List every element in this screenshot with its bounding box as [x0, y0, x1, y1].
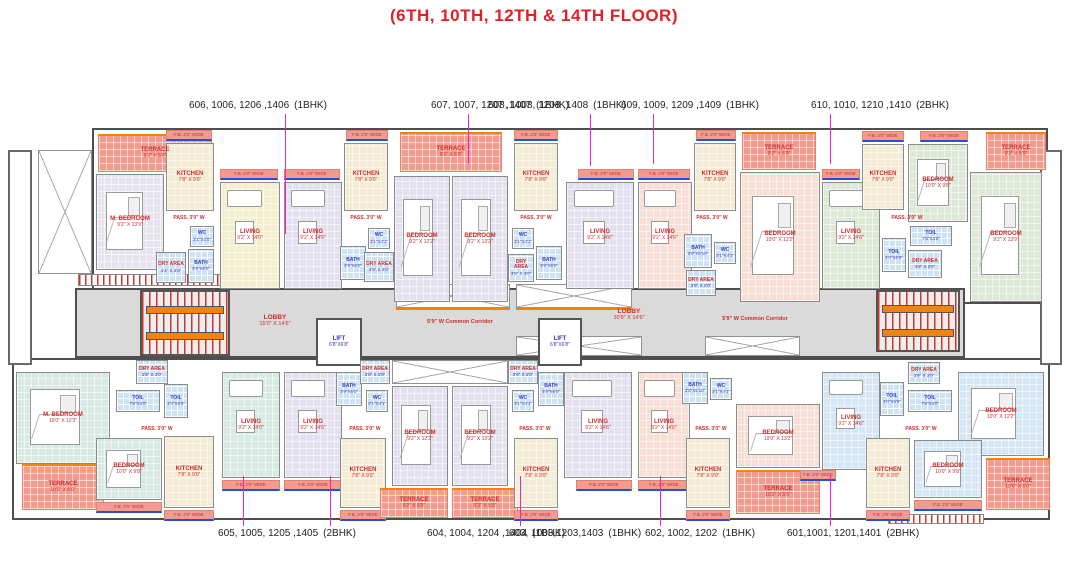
- room-dimension: 9'2" X 5'0": [436, 153, 465, 159]
- room-name: F.B. 2'0" WIDE: [693, 512, 722, 517]
- room-dimension: 7'8" X 9'0": [875, 474, 902, 480]
- room-bedroom: BEDROOM10'0" X 9'8": [96, 438, 162, 500]
- room-bedroom: BEDROOM9'2" X 12'2": [392, 386, 448, 486]
- room-f-b-2-0-wide: F.B. 2'0" WIDE: [920, 131, 968, 142]
- room-wc: WC3'1"X4'0": [190, 226, 214, 247]
- room-dimension: 10'0" X 12'3": [43, 419, 83, 425]
- room-dimension: 3'1"X4'1": [716, 253, 734, 258]
- room-dimension: 10'0" X 9'8": [932, 470, 963, 476]
- room-dimension: 9'2" X 5'9": [1001, 152, 1030, 158]
- room-dimension: 3'9" X 3'0": [366, 267, 392, 272]
- room-name: DRY AREA: [509, 260, 533, 272]
- room-bath: BATH3'9"X6'0": [336, 372, 362, 406]
- room-f-b-2-0-wide: F.B. 2'0" WIDE: [346, 130, 388, 141]
- room-pass-3-0-w: PASS. 3'0" W: [132, 424, 182, 435]
- room-f-b-2-0-wide: F.B. 2'0" WIDE: [914, 500, 982, 511]
- room-f-b-2-0-wide: F.B. 2'0" WIDE: [866, 510, 910, 521]
- room-dimension: 3'1"X4'1": [370, 239, 388, 244]
- room-bath: BATH3'9"X5'10": [682, 372, 708, 404]
- room-name: F.B. 2'0" WIDE: [929, 133, 958, 138]
- room-dimension: 7'8"X4'0": [129, 401, 147, 406]
- room-dimension: 9'2" X 14'6": [838, 422, 863, 428]
- duct-void-lower-right: [705, 336, 800, 356]
- room-name: F.B. 2'0" WIDE: [348, 512, 377, 517]
- void-hatch-bottom-center: [392, 360, 508, 384]
- room-living: LIVING9'2" X 14'6": [566, 182, 634, 289]
- room-dimension: 3'9" X 3'0": [362, 372, 388, 377]
- lobby-left-label: LOBBY 15'0" X 14'6": [240, 314, 310, 327]
- room-name: F.B. 2'0" WIDE: [234, 171, 263, 176]
- room-f-b-2-0-wide: F.B. 2'0" WIDE: [514, 130, 558, 141]
- room-dimension: 9'2" X 5'0": [399, 504, 428, 510]
- room-name: PASS. 3'0" W: [905, 427, 936, 433]
- room-dimension: 3'1"X4'0": [193, 237, 211, 242]
- room-bedroom: BEDROOM10'0" X 9'8": [908, 144, 968, 222]
- room-wc: WC3'1"X4'1": [366, 390, 388, 412]
- room-pass-3-0-w: PASS. 3'0" W: [688, 213, 736, 224]
- room-terrace: TERRACE9'2" X 5'9": [986, 132, 1046, 170]
- room-dimension: 10'0" X 5'0": [763, 493, 792, 499]
- room-dimension: 3'1"X4'1": [514, 239, 532, 244]
- room-dimension: 9'2" X 13'9": [110, 223, 150, 229]
- room-dimension: 7'8" X 9'0": [176, 473, 203, 479]
- room-dimension: 9'2" X 13'2": [464, 240, 495, 246]
- room-dimension: 10'0" X 9'8": [922, 184, 953, 190]
- room-bedroom: BEDROOM10'0" X 12'2": [740, 172, 820, 302]
- room-f-b-2-0-wide: F.B. 2'0" WIDE: [222, 480, 280, 491]
- room-dimension: 3'9" X 3'0": [911, 373, 937, 378]
- room-name: F.B. 2'0" WIDE: [174, 512, 203, 517]
- room-bedroom: BEDROOM9'2" X 13'9": [970, 172, 1042, 302]
- room-name: F.B. 2'0" WIDE: [297, 171, 326, 176]
- room-bedroom: BEDROOM9'2" X 13'2": [452, 176, 508, 302]
- room-name: PASS. 3'0" W: [173, 216, 204, 222]
- room-living: LIVING9'2" X 14'6": [284, 372, 342, 478]
- corridor-label-right: 5'9" W Common Corridor: [695, 316, 815, 322]
- room-name: F.B. 2'0" WIDE: [591, 171, 620, 176]
- room-name: F.B. 2'0" WIDE: [114, 504, 143, 509]
- room-dimension: 9'2" X 13'9": [990, 238, 1021, 244]
- room-living: LIVING9'2" X 14'6": [284, 182, 342, 289]
- lift-2: LIFT 6'8"X6'8": [538, 318, 582, 366]
- room-f-b-2-0-wide: F.B. 2'0" WIDE: [578, 169, 634, 180]
- room-dimension: 4'0"X6'9": [167, 401, 185, 406]
- unit-label: 606, 1006, 1206 ,1406 (1BHK): [138, 100, 378, 111]
- room-pass-3-0-w: PASS. 3'0" W: [688, 424, 734, 435]
- room-name: F.B. 2'0" WIDE: [521, 512, 550, 517]
- room-dry-area: DRY AREA4'4" X 3'0": [156, 252, 186, 283]
- room-dimension: 3'9"X5'10": [685, 388, 705, 393]
- sofa-icon: [829, 380, 863, 395]
- room-wc: WC3'1"X4'1": [512, 390, 534, 412]
- room-name: PASS. 3'0" W: [891, 216, 922, 222]
- unit-leader-line: [653, 114, 654, 164]
- room-dimension: 3'9"X6'0": [542, 389, 560, 394]
- room-dimension: 4'4" X 3'0": [158, 268, 184, 273]
- room-f-b-2-0-wide: F.B. 2'0" WIDE: [284, 169, 340, 180]
- staircase-left: [140, 290, 230, 356]
- room-dimension: 9'2" X 14'6": [300, 426, 325, 432]
- room-f-b-2-0-wide: F.B. 2'0" WIDE: [164, 510, 214, 521]
- lobby-right-label: LOBBY 10'9" X 14'6": [594, 308, 664, 321]
- room-terrace: TERRACE9'2" X 5'9": [742, 132, 816, 170]
- room-bedroom: BEDROOM10'0" X 9'8": [914, 440, 982, 498]
- room-dimension: 7'8" X 9'0": [523, 474, 550, 480]
- room-pass-3-0-w: PASS. 3'0" W: [512, 213, 560, 224]
- room-name: F.B. 2'0" WIDE: [701, 132, 730, 137]
- room-living: LIVING9'2" X 14'0": [222, 372, 280, 478]
- room-dry-area: DRY AREA3'9" X 3'0": [136, 360, 168, 384]
- room-dimension: 10'0" X 12'2": [985, 415, 1016, 421]
- room-f-b-2-0-wide: F.B. 2'0" WIDE: [686, 510, 730, 521]
- room-kitchen: KITCHEN7'8" X 9'0": [686, 438, 730, 508]
- sofa-icon: [572, 380, 612, 397]
- room-wc: WC3'1"X4'1": [710, 378, 732, 400]
- room-name: F.B. 2'0" WIDE: [352, 132, 381, 137]
- unit-leader-line: [468, 114, 469, 164]
- room-m-bedroom: M. BEDROOM9'2" X 13'9": [96, 174, 164, 270]
- room-dimension: 3'9"X6'0": [540, 263, 558, 268]
- room-living: LIVING9'2" X 14'6": [564, 372, 632, 478]
- room-dimension: 7'8" X 9'0": [695, 474, 722, 480]
- room-bath: BATH3'9"X6'0": [340, 246, 366, 280]
- room-dimension: 7'8" X 9'0": [177, 178, 204, 184]
- room-name: F.B. 2'0" WIDE: [236, 482, 265, 487]
- room-name: F.B. 2'0" WIDE: [298, 482, 327, 487]
- room-dimension: 7'8" X 9'0": [702, 178, 729, 184]
- unit-leader-line: [830, 476, 831, 526]
- room-dry-area: DRY AREA3'9" X 3'0": [908, 362, 940, 384]
- room-toil: TOIL4'0"X6'9": [882, 238, 906, 272]
- room-bedroom: BEDROOM9'2" X 12'2": [394, 176, 450, 302]
- room-kitchen: KITCHEN7'8" X 9'0": [344, 143, 388, 211]
- room-kitchen: KITCHEN7'8" X 9'0": [862, 144, 904, 210]
- room-wc: WC3'1"X4'1": [512, 228, 534, 249]
- room-dimension: 9'2" X 14'6": [585, 426, 610, 432]
- corridor-label-left: 5'9" W Common Corridor: [400, 319, 520, 325]
- room-dimension: 9'2" X 14'0": [238, 426, 263, 432]
- room-bedroom: BEDROOM9'2" X 13'2": [452, 386, 508, 486]
- column-left: [8, 150, 32, 365]
- room-dimension: 9'2" X 14'6": [300, 236, 325, 242]
- room-pass-3-0-w: PASS. 3'0" W: [884, 213, 930, 224]
- room-dry-area: DRY AREA3'9" X 3'0": [508, 254, 534, 282]
- room-kitchen: KITCHEN7'8" X 9'0": [164, 436, 214, 508]
- room-toil: TOIL7'8"X4'0": [116, 390, 160, 412]
- room-dimension: 7'8" X 9'0": [870, 178, 897, 184]
- room-dimension: 9'2" X 5'0": [470, 504, 499, 510]
- room-name: DRY AREA: [158, 262, 184, 268]
- room-dimension: 9'2" X 12'2": [406, 240, 437, 246]
- room-dimension: 10'0" X 5'0": [48, 488, 77, 494]
- room-f-b-2-0-wide: F.B. 2'0" WIDE: [284, 480, 342, 491]
- room-f-b-2-0-wide: F.B. 2'0" WIDE: [638, 480, 690, 491]
- room-name: F.B. 2'0" WIDE: [589, 482, 618, 487]
- room-dimension: 3'9"X6'0": [192, 266, 210, 271]
- room-dimension: 7'8"X4'0": [922, 236, 940, 241]
- room-dry-area: DRY AREA3'9" X 3'9": [908, 250, 942, 278]
- room-terrace: TERRACE9'2" X 5'0": [380, 488, 448, 518]
- room-name: F.B. 2'0" WIDE: [649, 171, 678, 176]
- room-dimension: 9'2" X 14'6": [651, 426, 676, 432]
- sofa-icon: [644, 380, 675, 397]
- room-kitchen: KITCHEN7'8" X 9'0": [866, 438, 910, 508]
- staircase-right: [876, 290, 960, 352]
- room-f-b-2-0-wide: F.B. 2'0" WIDE: [822, 169, 860, 180]
- room-name: PASS. 3'0" W: [695, 427, 726, 433]
- room-dry-area: DRY AREA3'9" X 3'0": [364, 252, 394, 282]
- room-dry-area: DRY AREA3'9" X 3'0": [686, 270, 716, 296]
- room-dimension: 3'9"X6'0": [340, 389, 358, 394]
- unit-label: 610, 1010, 1210 ,1410 (2BHK): [760, 100, 1000, 111]
- room-dimension: 7'8" X 9'0": [350, 474, 377, 480]
- room-dimension: 9'2" X 14'6": [838, 236, 863, 242]
- sofa-icon: [829, 190, 863, 207]
- lift-2-dim: 6'8"X6'8": [550, 342, 570, 348]
- room-terrace: TERRACE10'0" X 5'0": [22, 464, 104, 510]
- room-bath: BATH3'9"X5'10": [684, 234, 712, 268]
- room-dimension: 3'9" X 3'0": [688, 283, 714, 288]
- room-dry-area: DRY AREA3'9" X 3'0": [360, 360, 390, 384]
- room-f-b-2-0-wide: F.B. 2'0" WIDE: [576, 480, 632, 491]
- sofa-icon: [574, 190, 614, 207]
- sofa-icon: [291, 380, 325, 397]
- room-name: PASS. 3'0" W: [520, 216, 551, 222]
- room-dimension: 9'2" X 5'0": [140, 154, 169, 160]
- room-name: PASS. 3'0" W: [141, 427, 172, 433]
- room-f-b-2-0-wide: F.B. 2'0" WIDE: [96, 502, 162, 513]
- room-kitchen: KITCHEN7'8" X 9'0": [694, 143, 736, 211]
- void-hatch-top-left: [38, 150, 92, 274]
- lift-1-dim: 6'8"X6'8": [329, 342, 349, 348]
- room-name: F.B. 2'0" WIDE: [521, 132, 550, 137]
- room-toil: TOIL7'8"X4'0": [908, 390, 952, 412]
- unit-leader-line: [330, 476, 331, 526]
- room-bedroom: BEDROOM10'0" X 13'2": [736, 404, 820, 468]
- room-dimension: 3'9"X5'10": [688, 251, 708, 256]
- room-kitchen: KITCHEN7'8" X 9'0": [166, 143, 214, 211]
- room-dimension: 3'1"X4'1": [368, 401, 386, 406]
- room-terrace: TERRACE9'2" X 5'0": [452, 488, 518, 518]
- room-dimension: 9'2" X 12'2": [404, 437, 435, 443]
- room-dimension: 9'2" X 14'6": [587, 236, 612, 242]
- room-dimension: 9'2" X 5'9": [764, 152, 793, 158]
- room-bath: BATH3'9"X6'0": [188, 249, 214, 283]
- column-right: [1040, 150, 1062, 365]
- room-pass-3-0-w: PASS. 3'0" W: [342, 213, 390, 224]
- room-name: F.B. 2'0" WIDE: [803, 472, 832, 477]
- unit-leader-line: [285, 114, 286, 234]
- room-dimension: 10'0" X 9'8": [113, 470, 144, 476]
- room-wc: WC3'1"X4'1": [714, 242, 736, 264]
- room-name: F.B. 2'0" WIDE: [174, 132, 203, 137]
- room-dimension: 3'9" X 3'0": [510, 372, 536, 377]
- room-dimension: 3'9" X 3'9": [912, 264, 938, 269]
- room-dimension: 7'8" X 9'0": [523, 178, 550, 184]
- room-dimension: 7'8" X 9'0": [353, 178, 380, 184]
- room-name: F.B. 2'0" WIDE: [873, 512, 902, 517]
- sofa-icon: [227, 190, 263, 207]
- room-terrace: TERRACE10'0" X 5'0": [986, 458, 1050, 510]
- room-name: PASS. 3'0" W: [519, 427, 550, 433]
- room-dimension: 4'0"X6'9": [883, 399, 901, 404]
- room-kitchen: KITCHEN7'8" X 9'0": [514, 143, 558, 211]
- room-pass-3-0-w: PASS. 3'0" W: [342, 424, 388, 435]
- floor-plan-canvas: (6TH, 10TH, 12TH & 14TH FLOOR) LIFT 6'8"…: [0, 0, 1068, 572]
- room-wc: WC3'1"X4'1": [368, 228, 390, 249]
- room-dimension: 3'1"X4'1": [514, 401, 532, 406]
- room-living: LIVING9'2" X 14'0": [220, 182, 280, 289]
- room-pass-3-0-w: PASS. 3'0" W: [898, 424, 944, 435]
- sofa-icon: [291, 190, 325, 207]
- room-dimension: 3'1"X4'1": [712, 389, 730, 394]
- room-name: F.B. 2'0" WIDE: [649, 482, 678, 487]
- room-f-b-2-0-wide: F.B. 2'0" WIDE: [166, 130, 212, 141]
- room-dimension: 9'2" X 14'0": [237, 236, 262, 242]
- unit-leader-line: [590, 114, 591, 166]
- room-dimension: 3'9" X 3'0": [509, 271, 533, 276]
- room-terrace: TERRACE9'2" X 5'0": [400, 132, 502, 172]
- room-dimension: 9'2" X 14'6": [652, 236, 677, 242]
- page-title: (6TH, 10TH, 12TH & 14TH FLOOR): [0, 6, 1068, 26]
- room-name: F.B. 2'0" WIDE: [868, 133, 897, 138]
- room-pass-3-0-w: PASS. 3'0" W: [512, 424, 558, 435]
- room-dimension: 10'0" X 12'2": [764, 238, 795, 244]
- unit-label: 601,1001, 1201,1401 (2BHK): [733, 528, 973, 539]
- room-name: PASS. 3'0" W: [349, 427, 380, 433]
- sofa-icon: [644, 190, 676, 207]
- room-dry-area: DRY AREA3'9" X 3'0": [508, 360, 538, 384]
- room-dimension: 9'2" X 13'2": [464, 437, 495, 443]
- room-dimension: 10'0" X 13'2": [762, 437, 793, 443]
- room-dimension: 10'0" X 5'0": [1003, 485, 1032, 491]
- room-f-b-2-0-wide: F.B. 2'0" WIDE: [220, 169, 278, 180]
- room-toil: TOIL4'0"X6'9": [880, 382, 904, 416]
- unit-label: 605, 1005, 1205 ,1405 (2BHK): [167, 528, 407, 539]
- room-name: F.B. 2'0" WIDE: [826, 171, 855, 176]
- room-bath: BATH3'9"X6'0": [536, 246, 562, 280]
- room-f-b-2-0-wide: F.B. 2'0" WIDE: [638, 169, 690, 180]
- room-name: F.B. 2'0" WIDE: [933, 502, 962, 507]
- room-name: PASS. 3'0" W: [350, 216, 381, 222]
- room-dimension: 4'0"X6'9": [885, 255, 903, 260]
- room-toil: TOIL7'8"X4'0": [910, 226, 952, 246]
- room-name: PASS. 3'0" W: [696, 216, 727, 222]
- room-dimension: 3'9"X6'0": [344, 263, 362, 268]
- room-dimension: 3'9" X 3'0": [139, 372, 165, 377]
- room-pass-3-0-w: PASS. 3'0" W: [164, 213, 214, 224]
- sofa-icon: [229, 380, 263, 397]
- room-f-b-2-0-wide: F.B. 2'0" WIDE: [862, 131, 904, 142]
- room-f-b-2-0-wide: F.B. 2'0" WIDE: [696, 130, 736, 141]
- unit-leader-line: [830, 114, 831, 164]
- room-bath: BATH3'9"X6'0": [538, 372, 564, 406]
- lift-1: LIFT 6'8"X6'8": [316, 318, 362, 366]
- room-dimension: 7'8"X4'0": [921, 401, 939, 406]
- room-toil: TOIL4'0"X6'9": [164, 384, 188, 418]
- unit-leader-line: [520, 476, 521, 526]
